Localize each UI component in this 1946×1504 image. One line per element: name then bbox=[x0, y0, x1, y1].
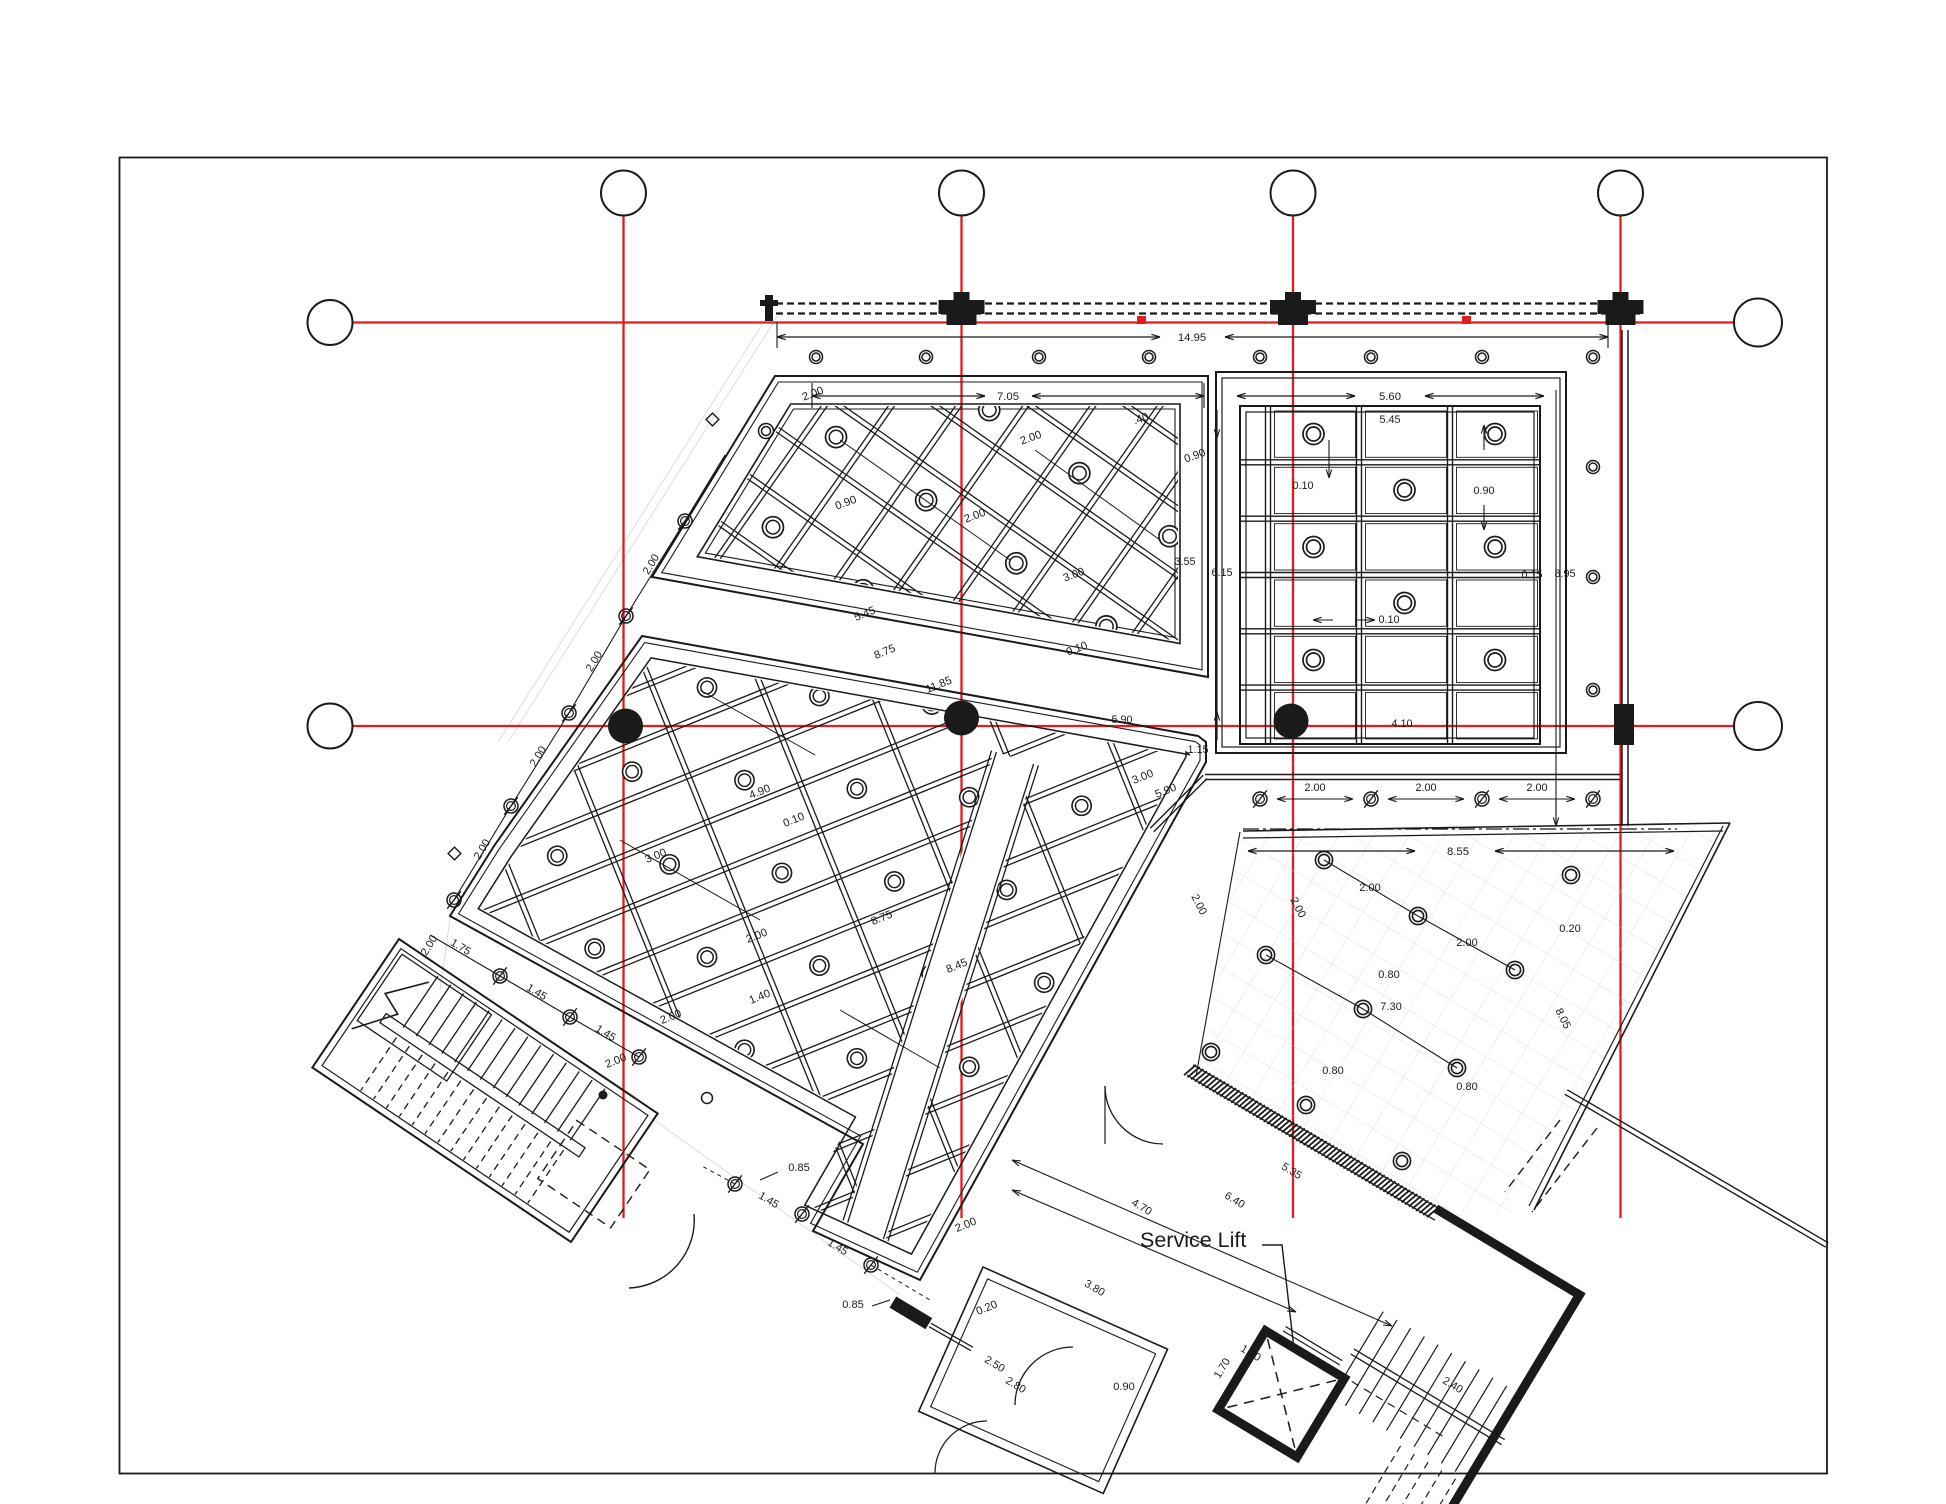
svg-text:0.85: 0.85 bbox=[788, 1162, 809, 1174]
svg-text:1.75: 1.75 bbox=[448, 937, 473, 958]
svg-text:6.40: 6.40 bbox=[1222, 1190, 1247, 1211]
svg-text:1.45: 1.45 bbox=[593, 1023, 618, 1044]
svg-text:0.80: 0.80 bbox=[1456, 1081, 1477, 1093]
svg-text:8.05: 8.05 bbox=[1552, 1006, 1572, 1031]
svg-text:0.20: 0.20 bbox=[975, 1299, 1000, 1318]
svg-text:0.90: 0.90 bbox=[834, 494, 859, 513]
svg-text:2.00: 2.00 bbox=[1188, 892, 1208, 917]
svg-text:1.45: 1.45 bbox=[524, 982, 549, 1003]
svg-text:2.00: 2.00 bbox=[963, 507, 988, 526]
svg-text:Service Lift: Service Lift bbox=[1140, 1228, 1246, 1252]
svg-text:1.15: 1.15 bbox=[1187, 744, 1208, 756]
svg-text:4.70: 4.70 bbox=[1129, 1197, 1154, 1218]
svg-text:2.00: 2.00 bbox=[1415, 782, 1436, 794]
svg-text:1.70: 1.70 bbox=[1212, 1356, 1233, 1381]
svg-text:8.75: 8.75 bbox=[873, 643, 898, 662]
svg-text:0.80: 0.80 bbox=[1378, 969, 1399, 981]
svg-text:2.00: 2.00 bbox=[419, 933, 440, 958]
svg-text:8.95: 8.95 bbox=[1554, 568, 1575, 580]
svg-text:2.00: 2.00 bbox=[1304, 782, 1325, 794]
svg-text:0.15: 0.15 bbox=[1521, 569, 1542, 581]
svg-text:3.80: 3.80 bbox=[1082, 1278, 1107, 1299]
svg-text:3.00: 3.00 bbox=[1131, 768, 1156, 787]
svg-text:0.10: 0.10 bbox=[782, 811, 807, 830]
svg-text:0.80: 0.80 bbox=[1322, 1065, 1343, 1077]
svg-text:5.60: 5.60 bbox=[1379, 391, 1401, 403]
svg-text:2.40: 2.40 bbox=[1440, 1375, 1465, 1396]
svg-text:14.95: 14.95 bbox=[1178, 332, 1206, 344]
svg-text:5.45: 5.45 bbox=[1379, 414, 1400, 426]
svg-text:3.00: 3.00 bbox=[1062, 566, 1087, 585]
svg-text:5.90: 5.90 bbox=[1111, 714, 1132, 726]
svg-text:0.10: 0.10 bbox=[1378, 614, 1399, 626]
svg-text:2.00: 2.00 bbox=[1359, 882, 1380, 894]
svg-text:11.85: 11.85 bbox=[924, 675, 954, 696]
svg-text:4.10: 4.10 bbox=[1391, 718, 1412, 730]
svg-text:0.10: 0.10 bbox=[1292, 480, 1313, 492]
svg-text:7.30: 7.30 bbox=[1380, 1001, 1401, 1013]
svg-text:0.90: 0.90 bbox=[1183, 447, 1208, 466]
svg-text:0.85: 0.85 bbox=[842, 1299, 863, 1311]
svg-text:2.00: 2.00 bbox=[584, 649, 605, 674]
svg-text:7.05: 7.05 bbox=[997, 391, 1019, 403]
svg-text:5.90: 5.90 bbox=[1154, 782, 1179, 801]
svg-text:0.90: 0.90 bbox=[1113, 1381, 1134, 1393]
svg-text:3.55: 3.55 bbox=[1174, 556, 1195, 568]
svg-text:2.50: 2.50 bbox=[982, 1354, 1007, 1375]
svg-text:8.55: 8.55 bbox=[1447, 846, 1469, 858]
svg-text:2.00: 2.00 bbox=[528, 744, 549, 769]
svg-text:0.90: 0.90 bbox=[1473, 485, 1494, 497]
svg-text:8.75: 8.75 bbox=[870, 909, 895, 928]
svg-text:1.40: 1.40 bbox=[748, 988, 773, 1007]
svg-text:2.00: 2.00 bbox=[1019, 429, 1044, 448]
svg-text:2.00: 2.00 bbox=[801, 385, 826, 404]
svg-text:2.00: 2.00 bbox=[1456, 937, 1477, 949]
svg-text:2.00: 2.00 bbox=[954, 1216, 979, 1235]
svg-text:5.35: 5.35 bbox=[1279, 1161, 1304, 1182]
svg-text:0.20: 0.20 bbox=[1559, 923, 1580, 935]
svg-text:2.00: 2.00 bbox=[1526, 782, 1547, 794]
